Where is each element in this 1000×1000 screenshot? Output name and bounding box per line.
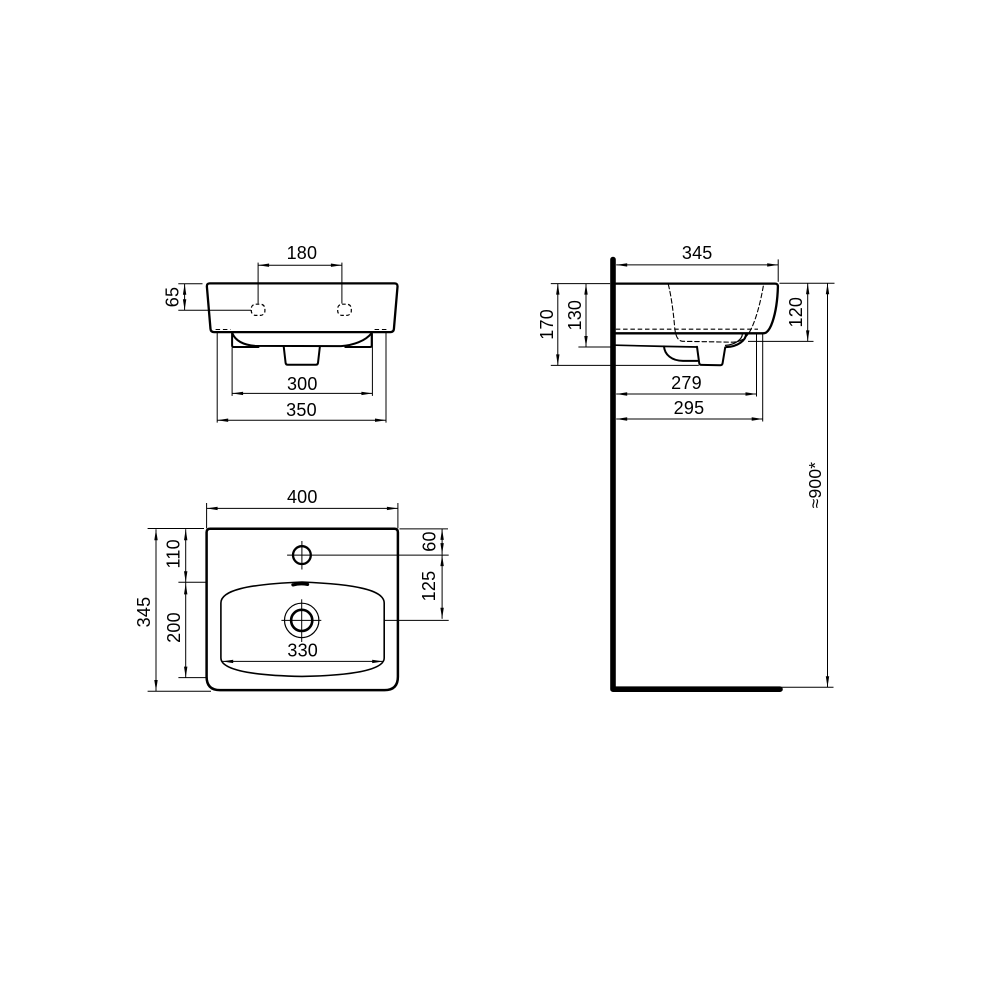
svg-text:110: 110 <box>163 539 183 568</box>
svg-text:330: 330 <box>287 640 318 660</box>
svg-text:350: 350 <box>286 400 317 420</box>
svg-text:200: 200 <box>164 612 184 643</box>
svg-text:125: 125 <box>419 571 439 602</box>
svg-text:295: 295 <box>674 398 705 418</box>
svg-text:300: 300 <box>287 374 318 394</box>
svg-text:170: 170 <box>537 309 557 340</box>
svg-text:345: 345 <box>134 597 154 628</box>
svg-text:130: 130 <box>565 300 585 331</box>
svg-text:345: 345 <box>682 243 713 263</box>
svg-text:279: 279 <box>671 373 702 393</box>
svg-text:180: 180 <box>287 243 318 263</box>
svg-text:≈900*: ≈900* <box>805 462 825 509</box>
svg-text:400: 400 <box>287 487 318 507</box>
svg-text:60: 60 <box>419 531 439 551</box>
svg-text:120: 120 <box>786 297 806 328</box>
svg-text:65: 65 <box>162 287 182 307</box>
